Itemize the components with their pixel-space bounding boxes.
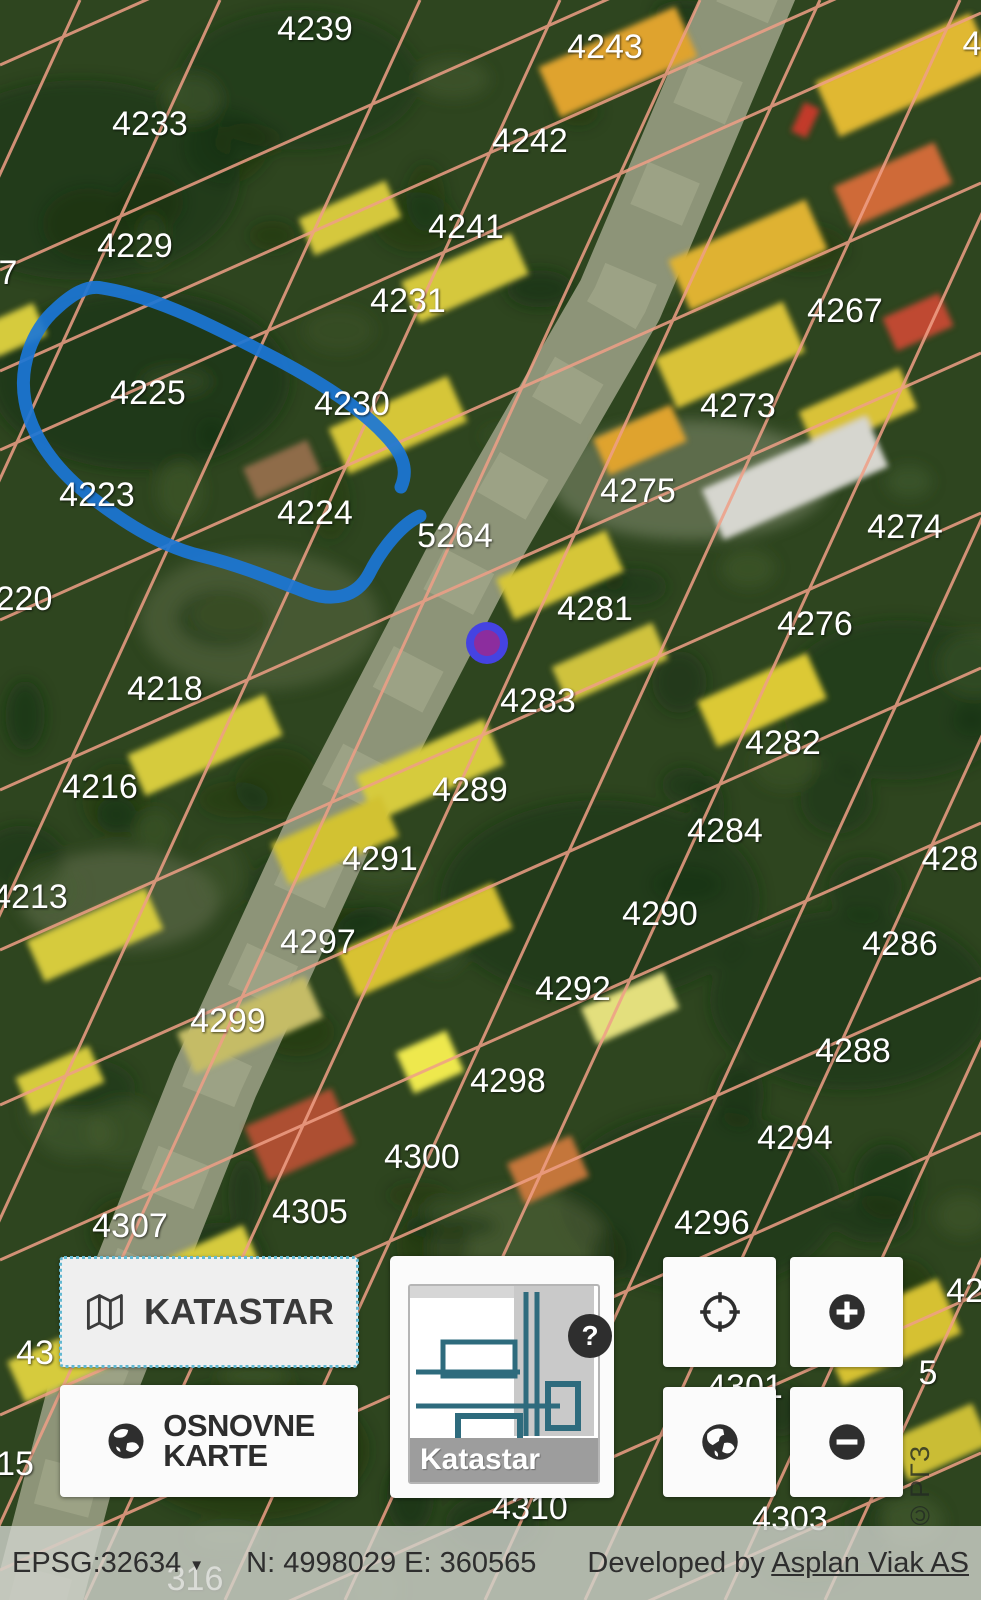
map-app: 4239442434233424242414229742314267422542… [0,0,981,1600]
parcel-label: 220 [0,580,52,618]
chevron-down-icon: ▼ [189,1557,204,1574]
parcel-label: 4218 [127,670,203,708]
layer-preview-caption: Katastar [410,1438,598,1482]
layer-button-label: KATASTAR [144,1291,334,1333]
zoom-out-button[interactable] [790,1387,903,1497]
parcel-label: 4292 [535,970,611,1008]
parcel-label: 4216 [62,768,138,806]
parcel-label: 4300 [384,1138,460,1176]
parcel-label: 428 [922,840,979,878]
parcel-label: 4291 [342,840,418,878]
base-map-globe-button[interactable] [663,1387,776,1497]
parcel-label: 4283 [500,682,576,720]
parcel-label: 4241 [428,208,504,246]
developer-link[interactable]: Asplan Viak AS [771,1547,969,1579]
parcel-label: 4230 [314,385,390,423]
parcel-label: 4282 [745,724,821,762]
parcel-label: 4276 [777,605,853,643]
zoom-in-button[interactable] [790,1257,903,1367]
parcel-label: 42 [946,1272,981,1310]
parcel-label: 4267 [807,292,883,330]
parcel-label: 5264 [417,517,493,555]
parcel-label: 43 [16,1334,54,1372]
parcel-label: 4305 [272,1193,348,1231]
parcel-label: 4223 [59,476,135,514]
layer-button-label: OSNOVNE KARTE [163,1411,315,1472]
developed-by: Developed by Asplan Viak AS [587,1547,969,1580]
parcel-label: 4 [963,25,981,63]
parcel-label: 4275 [600,472,676,510]
parcel-label: 15 [0,1445,34,1483]
zoom-out-icon [823,1418,871,1466]
parcel-label: 4229 [97,227,173,265]
parcel-label: 4225 [110,374,186,412]
layer-button-katastar[interactable]: KATASTAR [60,1257,358,1367]
parcel-label: 4231 [370,282,446,320]
globe-icon [696,1418,744,1466]
parcel-label: 4298 [470,1062,546,1100]
layer-preview-card[interactable]: ? Katastar [390,1256,614,1498]
globe-icon [103,1418,149,1464]
parcel-label: 4243 [567,28,643,66]
parcel-label: 4281 [557,590,633,628]
parcel-label: 4297 [280,923,356,961]
parcel-label: 4284 [687,812,763,850]
status-bar: EPSG:32634 ▼ N: 4998029 E: 360565 Develo… [0,1526,981,1600]
copyright-watermark: ©РГЗ [905,1380,945,1530]
locate-icon [696,1288,744,1336]
parcel-label: 4274 [867,508,943,546]
parcel-label: 4233 [112,105,188,143]
parcel-label: 7 [0,254,17,292]
parcel-label: 4288 [815,1032,891,1070]
epsg-selector[interactable]: EPSG:32634 ▼ [12,1547,204,1580]
folded-map-icon [84,1290,128,1334]
coordinates-readout: N: 4998029 E: 360565 [246,1547,536,1580]
layer-help-badge[interactable]: ? [568,1314,612,1358]
point-marker [466,622,508,664]
parcel-label: 4273 [700,387,776,425]
parcel-label: 4307 [92,1207,168,1245]
parcel-label: 4290 [622,895,698,933]
parcel-label: 4224 [277,494,353,532]
parcel-label: 4213 [0,878,68,916]
parcel-label: 4299 [190,1002,266,1040]
parcel-label: 4239 [277,10,353,48]
locate-button[interactable] [663,1257,776,1367]
parcel-label: 4242 [492,122,568,160]
layer-preview-thumbnail[interactable]: ? Katastar [408,1284,600,1484]
zoom-in-icon [823,1288,871,1336]
layer-button-osnovne-karte[interactable]: OSNOVNE KARTE [60,1385,358,1497]
parcel-label: 4289 [432,771,508,809]
parcel-label: 4286 [862,925,938,963]
parcel-label: 4296 [674,1204,750,1242]
parcel-label: 4294 [757,1119,833,1157]
